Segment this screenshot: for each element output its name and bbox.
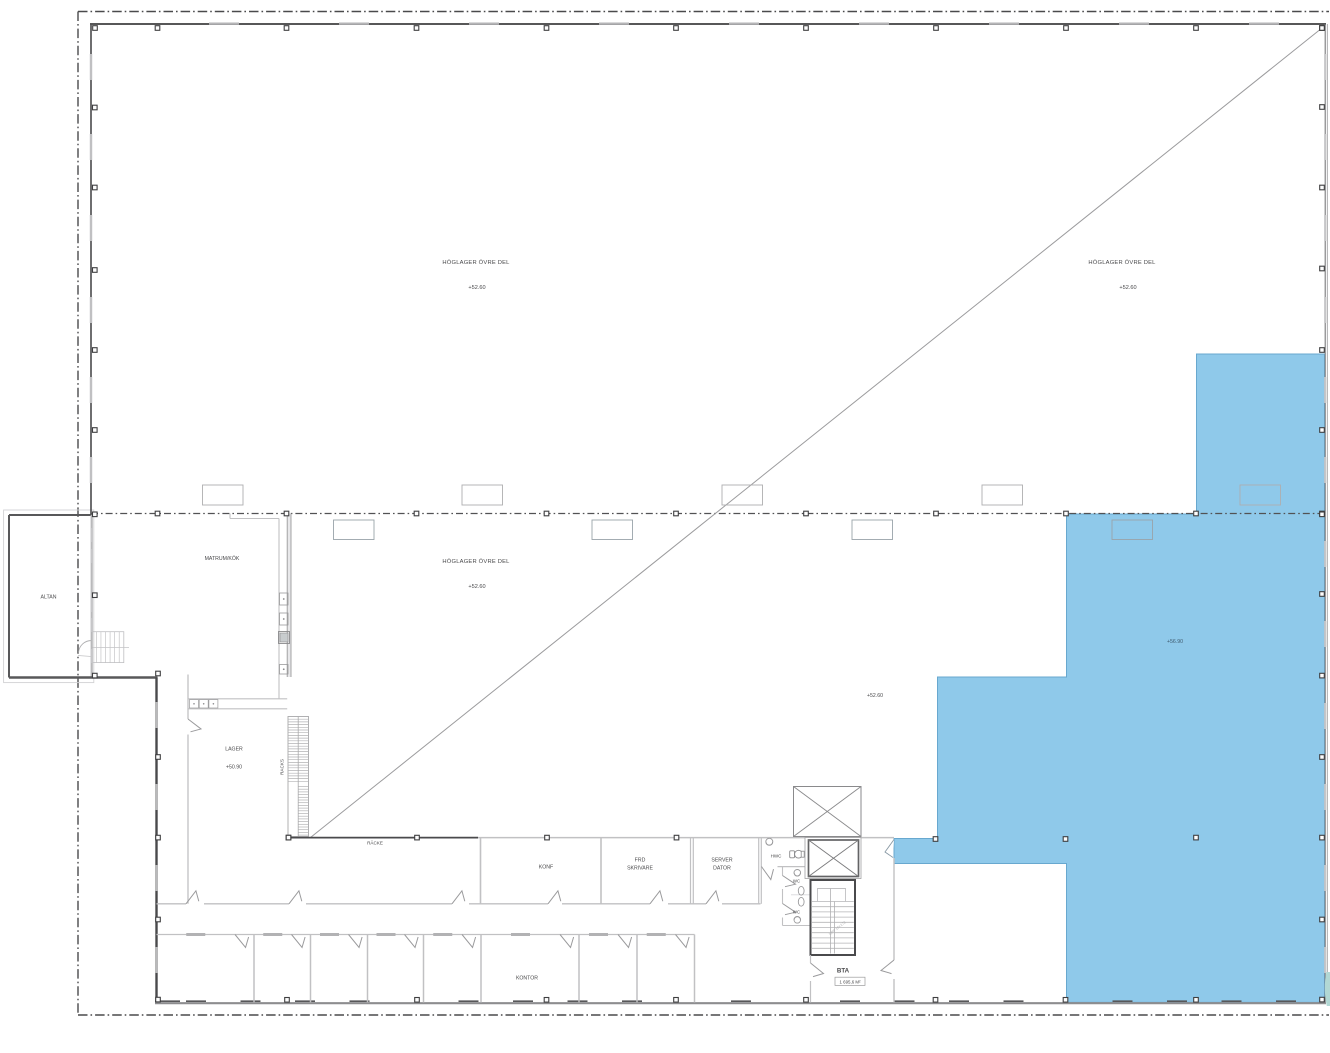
svg-text:+56.90: +56.90	[1167, 639, 1183, 645]
svg-text:SERVER: SERVER	[711, 858, 732, 864]
svg-text:+52.60: +52.60	[1119, 285, 1136, 291]
svg-text:KONTOR: KONTOR	[516, 976, 538, 982]
svg-text:RÄCKE: RÄCKE	[367, 840, 383, 846]
svg-text:HÖGLAGER ÖVRE DEL: HÖGLAGER ÖVRE DEL	[442, 259, 510, 266]
svg-text:+52.60: +52.60	[867, 693, 883, 699]
svg-text:LAGER: LAGER	[225, 747, 243, 753]
svg-text:RACKS: RACKS	[280, 759, 285, 775]
svg-text:+50.90: +50.90	[226, 765, 242, 771]
svg-text:WC: WC	[793, 909, 800, 914]
svg-text:+52.60: +52.60	[468, 285, 485, 291]
svg-text:ALTAN: ALTAN	[41, 595, 57, 601]
svg-text:BTA: BTA	[837, 968, 850, 975]
svg-text:1 695,6 M²: 1 695,6 M²	[840, 980, 862, 985]
svg-text:DATOR: DATOR	[713, 866, 731, 872]
svg-text:KONF: KONF	[539, 865, 553, 871]
svg-text:MATRUM/KÖK: MATRUM/KÖK	[205, 555, 240, 562]
svg-text:WC: WC	[793, 879, 800, 884]
svg-text:HÖGLAGER ÖVRE DEL: HÖGLAGER ÖVRE DEL	[1088, 259, 1156, 266]
svg-text:HÖGLAGER ÖVRE DEL: HÖGLAGER ÖVRE DEL	[442, 558, 510, 565]
svg-text:SKRIVARE: SKRIVARE	[627, 866, 653, 872]
svg-text:HWC: HWC	[771, 854, 782, 859]
svg-text:+52.60: +52.60	[468, 584, 485, 590]
svg-text:FRD: FRD	[635, 858, 646, 864]
